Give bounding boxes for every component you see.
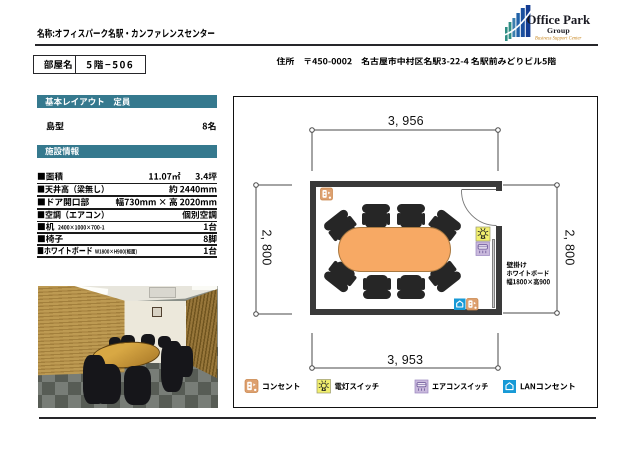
svg-text:Business Support Center: Business Support Center: [535, 37, 582, 42]
svg-text:Office Park: Office Park: [527, 13, 591, 27]
svg-text:Group: Group: [547, 26, 570, 35]
